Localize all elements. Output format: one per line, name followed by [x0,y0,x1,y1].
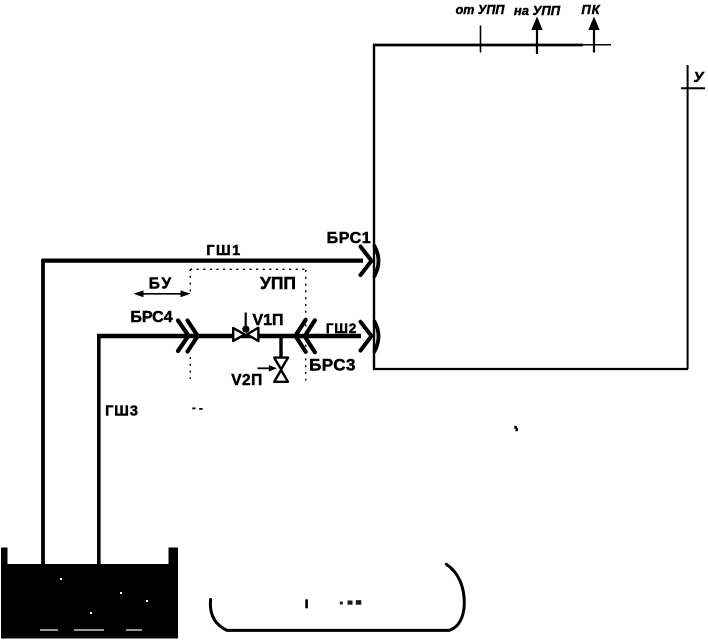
svg-text:БУ: БУ [149,276,173,293]
svg-text:V1П: V1П [252,312,283,329]
svg-text:ПК: ПК [581,2,600,17]
svg-text:ГШ3: ГШ3 [105,403,139,419]
svg-text:ГШ2: ГШ2 [326,321,357,336]
svg-text:УПП: УПП [260,273,296,293]
svg-text:на УПП: на УПП [514,3,561,18]
svg-text:ГШ1: ГШ1 [206,243,241,259]
svg-text:БРС1: БРС1 [327,230,372,247]
svg-text:У: У [693,69,705,86]
svg-text:БРС3: БРС3 [309,355,356,374]
svg-text:БРС4: БРС4 [130,309,172,326]
svg-text:V2П: V2П [231,372,263,389]
svg-text:от УПП: от УПП [456,3,506,17]
